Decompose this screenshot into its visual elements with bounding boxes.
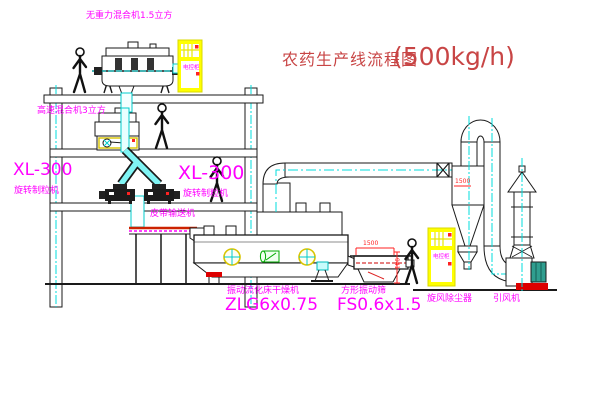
diagram-canvas: 农药生产线流程图 (500kg/h) 无重力混合机1.5立方 高速混合机3立方 … xyxy=(0,0,600,403)
dim-screen-length: 1500 xyxy=(363,241,378,247)
cabinet2-label: 电控柜 xyxy=(433,255,450,261)
label-granulator-right-model: XL-300 xyxy=(178,164,244,183)
label-belt-conveyor: 皮带输送机 xyxy=(150,210,195,219)
label-granulator-left-model: XL-300 xyxy=(13,162,72,179)
exhaust-duct xyxy=(263,163,468,212)
title-capacity: (500kg/h) xyxy=(393,44,515,69)
label-cyclone: 旋风除尘器 xyxy=(427,295,472,304)
cabinet1-label: 电控柜 xyxy=(183,66,200,72)
induced-draft-fan xyxy=(506,245,548,290)
granulator-right xyxy=(144,184,180,204)
worker-figure xyxy=(74,48,87,92)
granulator-left xyxy=(99,184,135,204)
label-highspeed-mixer: 高速混合机3立方 xyxy=(37,107,106,116)
label-fan: 引风机 xyxy=(493,295,520,304)
worker-figure xyxy=(156,104,169,148)
label-dryer-model: ZLG6x0.75 xyxy=(225,297,318,314)
label-granulator-right-name: 旋转制粒机 xyxy=(183,190,228,199)
vibrating-screen xyxy=(350,248,414,283)
label-granulator-left-name: 旋转制粒机 xyxy=(14,187,59,196)
label-gravity-mixer: 无重力混合机1.5立方 xyxy=(86,12,172,21)
dim-screen-height: 941 xyxy=(393,258,399,269)
label-screen-model: FS0.6x1.5 xyxy=(337,297,421,314)
fluidbed-dryer xyxy=(194,203,360,284)
dim-cyclone: 1500 xyxy=(455,179,470,185)
